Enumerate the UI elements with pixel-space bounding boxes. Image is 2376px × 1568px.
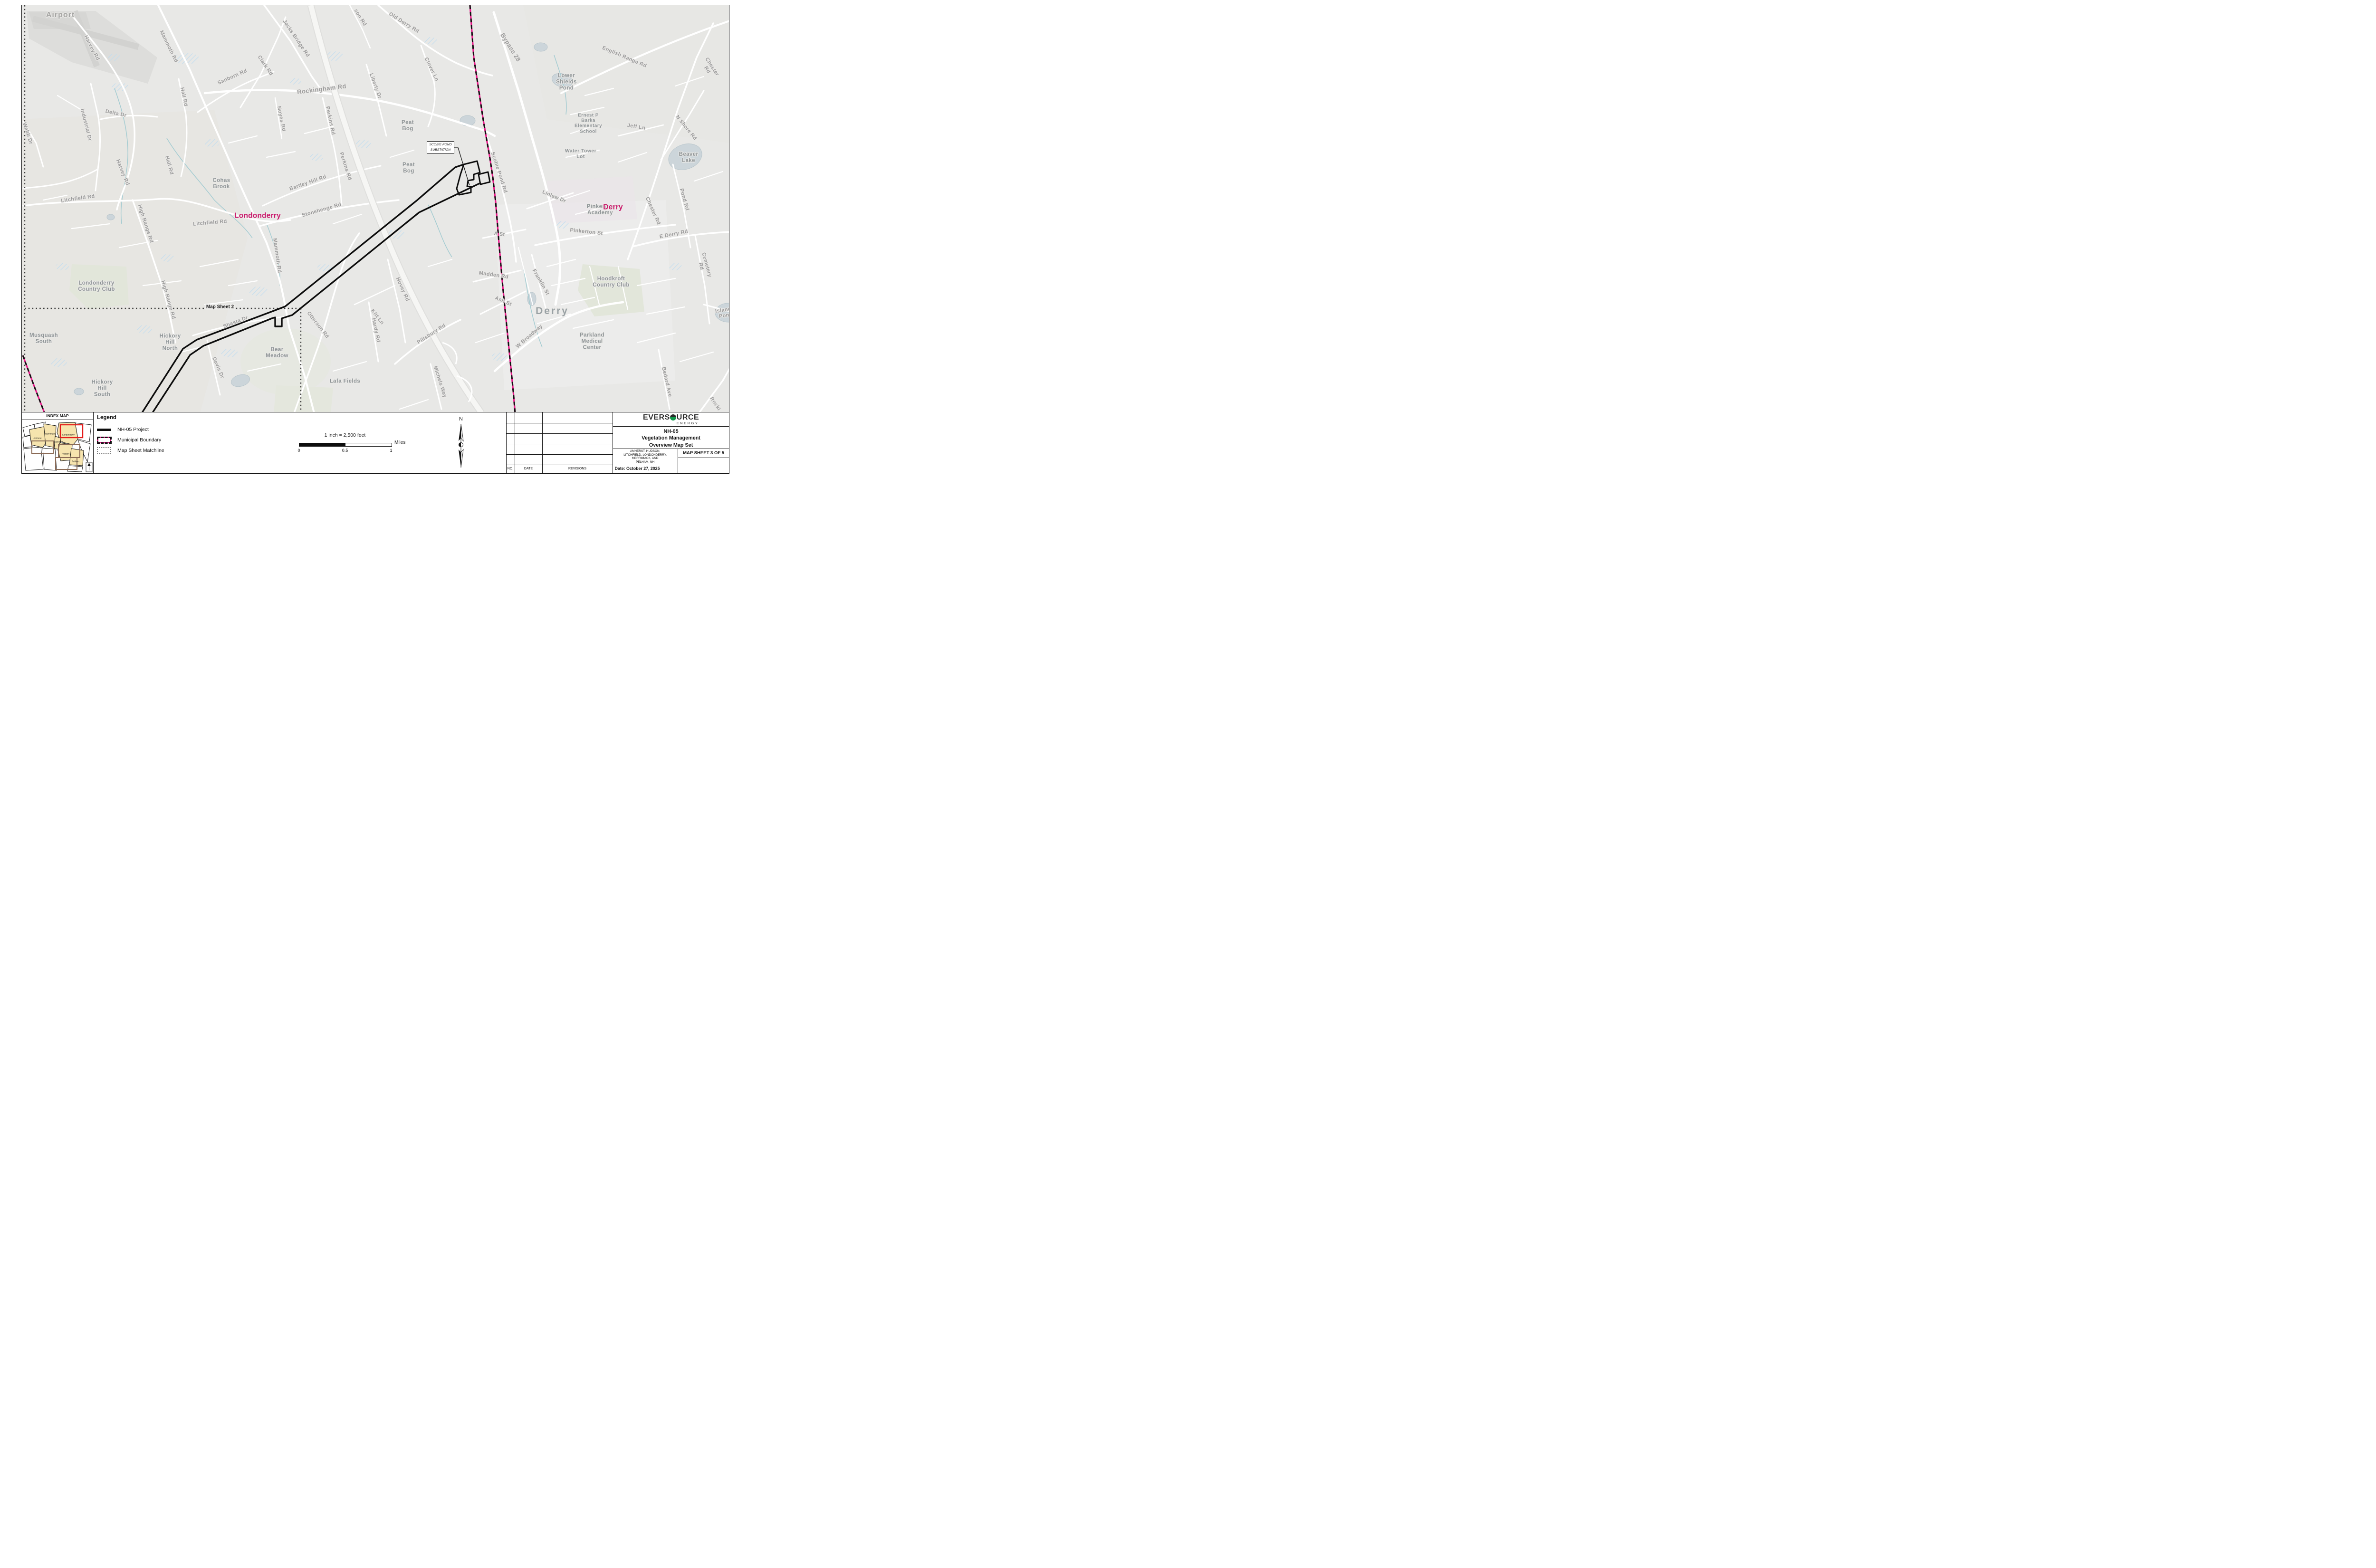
substation-callout: SCOBIE POND SUBSTATION — [427, 141, 454, 154]
map-label: Webb Dr — [21, 122, 34, 145]
map-label: Sanborn Rd — [217, 68, 248, 86]
sheet-cell: MAP SHEET 3 OF 5 — [678, 449, 729, 464]
map-label: Delta Dr — [105, 108, 127, 118]
map-label: N Shore Rd — [674, 114, 698, 141]
map-label: W Broadway — [515, 323, 544, 349]
map-label: Peat Bog — [402, 120, 414, 132]
map-label: Chester Rd — [644, 196, 662, 226]
divider — [93, 412, 94, 473]
map-label: Liberty Dr — [368, 73, 383, 100]
map-label: Hoodkroft Country Club — [593, 276, 630, 288]
map-label: Industrial Dr — [79, 108, 93, 142]
map-label: Hickory Hill North — [160, 334, 181, 352]
map-label: Shasta Dr — [222, 315, 249, 329]
map-canvas: Harvey RdIndustrial DrWebb DrDelta DrMam… — [21, 5, 729, 412]
map-label: Hall Rd — [179, 87, 189, 107]
map-label-layer: Harvey RdIndustrial DrWebb DrDelta DrMam… — [22, 5, 729, 412]
matchline-swatch — [97, 447, 111, 454]
eversource-energy-label: ENERGY — [646, 421, 729, 425]
scale-bar-white-half — [345, 443, 392, 446]
legend-item-label: Map Sheet Matchline — [117, 448, 164, 453]
map-label: Jacks Bridge Rd — [281, 19, 311, 58]
map-label: Cohas Brook — [212, 178, 230, 190]
map-label: Musquash South — [29, 333, 58, 345]
map-label: Pillsbury Rd — [416, 323, 447, 345]
index-map-title: INDEX MAP — [22, 412, 93, 420]
callout-line1: SCOBIE POND — [427, 143, 454, 148]
map-label: Derry — [603, 203, 623, 211]
map-label: Harvey Rd — [83, 34, 101, 61]
map-label: Litchfield Rd — [61, 193, 96, 204]
eversource-o-icon — [670, 414, 676, 421]
map-label: Chester Rd — [699, 57, 720, 80]
map-label: Hall Rd — [163, 155, 174, 176]
north-arrow: N — [451, 416, 471, 472]
map-label: Linlew Dr — [541, 189, 567, 204]
legend: Legend NH-05 ProjectMunicipal BoundaryMa… — [97, 415, 216, 456]
revisions-column-header: REVISIONS — [542, 465, 613, 473]
scale-unit: Miles — [394, 440, 405, 445]
map-label: Pond Rd — [678, 188, 690, 211]
map-label: High Range Rd — [136, 204, 154, 244]
bottom-panel: INDEX MAP — [21, 412, 729, 474]
index-map-body: AmherstMerrimackLondonderryLitchfieldHud… — [22, 420, 93, 473]
legend-item-label: Municipal Boundary — [117, 437, 161, 443]
project-id: NH-05 — [613, 428, 729, 435]
legend-item: Map Sheet Matchline — [97, 446, 216, 455]
revisions-column-header: DATE — [515, 465, 542, 473]
north-arrow-graphic — [451, 416, 471, 472]
map-label: Stonehenge Rd — [301, 201, 342, 219]
map-label: Clark Rd — [256, 54, 274, 76]
map-title: NH-05 Vegetation Management Overview Map… — [613, 427, 729, 449]
map-label: Otterson Rd — [306, 310, 330, 339]
eversource-wordmark: EVERSURCE — [613, 414, 729, 421]
map-label: Old Derry Rd — [388, 11, 420, 35]
revisions-table: NO.DATEREVISIONS — [506, 412, 613, 473]
map-label: Bear Meadow — [266, 347, 288, 359]
map-label: Bartley Hill Rd — [289, 174, 327, 192]
map-label: High Range Rd — [160, 280, 176, 320]
map-label: Madden Rd — [479, 270, 509, 280]
index-town-label: Hudson — [62, 453, 69, 455]
map-label: Jeff Ln — [627, 123, 646, 131]
map-label: Ernest P Barka Elementary School — [575, 113, 602, 134]
map-label: Lafa Fields — [330, 379, 360, 385]
map-title-line3: Overview Map Set — [613, 442, 729, 449]
map-label: Bedard Ave — [661, 366, 673, 397]
map-label: Clover Ln — [423, 57, 440, 82]
map-label: Hovey Rd — [394, 277, 410, 302]
index-town-label: Pelham — [72, 460, 79, 463]
municipal-boundary-swatch — [97, 437, 111, 443]
scale-tick: 0.5 — [342, 448, 348, 453]
map-label: Derry — [536, 306, 569, 317]
map-label: Peat Bog — [402, 162, 415, 174]
legend-items: NH-05 ProjectMunicipal BoundaryMap Sheet… — [97, 425, 216, 455]
map-label: Londonderry — [234, 211, 281, 220]
legend-item: NH-05 Project — [97, 425, 216, 434]
map-label: Perkins Rd — [338, 152, 353, 181]
map-label: Rockingham Rd — [297, 83, 346, 96]
index-map: INDEX MAP — [22, 412, 93, 473]
map-label: English Range Rd — [601, 45, 647, 69]
map-date: Date: October 27, 2025 — [613, 464, 678, 473]
map-label: Cemetery Rd — [695, 252, 713, 279]
map-label: Noyes Rd — [276, 105, 287, 132]
map-label: Bypass 28 — [499, 32, 522, 63]
map-title-line2: Vegetation Management — [613, 435, 729, 441]
scale-tick: 1 — [390, 448, 392, 453]
map-label: Rocki — [709, 396, 722, 411]
revisions-column-header: NO. — [506, 465, 515, 473]
index-town-label: Amherst — [33, 437, 41, 440]
map-label: Ash St — [494, 295, 512, 307]
north-label: N — [451, 416, 471, 422]
map-label: Scobie Pond Rd — [489, 151, 508, 193]
scale-tick: 0 — [297, 448, 300, 453]
map-label: Perkins Rd — [325, 106, 336, 136]
map-label: A St — [494, 230, 506, 238]
legend-item-label: NH-05 Project — [117, 427, 149, 432]
map-label: Harvey Rd — [115, 159, 130, 186]
map-label: Franklin St — [531, 268, 550, 296]
map-label: Lower Shields Pond — [556, 73, 577, 92]
index-town-label: Londonderry — [62, 434, 75, 436]
map-label: son Rd — [353, 8, 367, 27]
map-label: Map Sheet 2 — [205, 304, 235, 309]
index-town-labels: AmherstMerrimackLondonderryLitchfieldHud… — [22, 420, 93, 473]
map-label: Pinkerton St — [570, 227, 603, 237]
map-label: E Derry Rd — [659, 229, 689, 240]
scale-bar-black-half — [299, 443, 345, 446]
map-label: Davis Dr — [211, 356, 225, 380]
towns-list: AMHERST, HUDSON, LITCHFIELD, LONDONDERRY… — [613, 449, 678, 464]
legend-title: Legend — [97, 415, 216, 421]
scale-caption: 1 inch = 2,500 feet — [299, 432, 391, 438]
index-town-label: Merrimack — [45, 433, 55, 435]
map-label: Michels Way — [432, 365, 448, 399]
map-label: Litchfield Rd — [193, 219, 228, 228]
scale-bar-graphic: Miles — [299, 443, 392, 447]
map-label: Island Pon — [715, 306, 729, 320]
title-block: EVERSURCE ENERGY NH-05 Vegetation Manage… — [613, 412, 729, 473]
map-label: Mammoth Rd — [272, 238, 282, 274]
map-label: Mammoth Rd — [158, 29, 179, 64]
map-sheet-page: Harvey RdIndustrial DrWebb DrDelta DrMam… — [0, 0, 735, 475]
map-label: Beaver Lake — [679, 152, 699, 164]
eversource-logo: EVERSURCE ENERGY — [613, 412, 729, 427]
project-line-swatch — [97, 429, 111, 431]
callout-line2: SUBSTATION — [427, 148, 454, 153]
map-label: Hickory Hill South — [92, 380, 113, 398]
scale-ticks: 00.51 — [278, 448, 420, 454]
legend-item: Municipal Boundary — [97, 435, 216, 445]
map-label: Airport — [46, 11, 75, 19]
map-label: Londonderry Country Club — [78, 280, 115, 293]
map-label: Water Tower Lot — [565, 148, 596, 160]
index-town-label: Litchfield — [54, 441, 63, 443]
map-label: Parkland Medical Center — [580, 333, 604, 351]
sheet-number: MAP SHEET 3 OF 5 — [678, 449, 729, 458]
